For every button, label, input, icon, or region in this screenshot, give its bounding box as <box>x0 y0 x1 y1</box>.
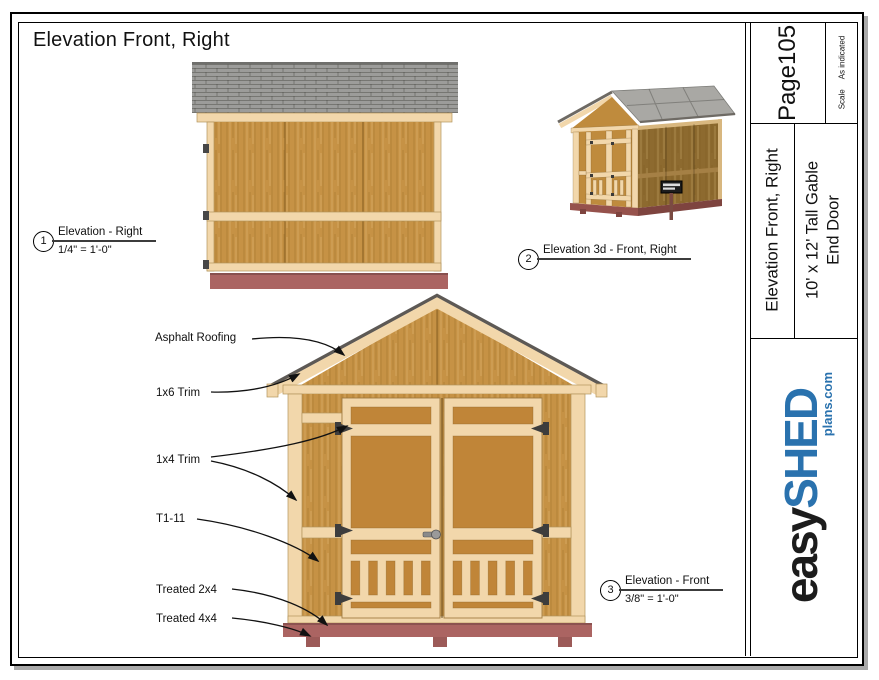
annotation-1x6-trim: 1x6 Trim <box>156 387 200 399</box>
annotation-1x4-trim: 1x4 Trim <box>156 454 200 466</box>
callout-number: 2 <box>518 249 539 270</box>
sheet-info-cell: Elevation Front, Right 10' x 12' Tall Ga… <box>751 123 857 339</box>
callout-front-elevation: 3 Elevation - Front 3/8" = 1'-0" <box>600 575 723 605</box>
annotation-treated-2x4: Treated 2x4 <box>156 584 217 596</box>
page-title: Elevation Front, Right <box>33 29 230 52</box>
callout-title: Elevation - Right <box>52 226 156 242</box>
annotation-asphalt-roofing: Asphalt Roofing <box>155 332 236 344</box>
callout-scale: 1/4" = 1'-0" <box>52 242 156 256</box>
callout-number: 3 <box>600 580 621 601</box>
title-block: Page105 ScaleAs indicated Elevation Fron… <box>750 22 857 656</box>
title-block-separator <box>745 22 746 656</box>
plan-sheet: Elevation Front, Right <box>0 0 879 680</box>
double-doors <box>342 398 542 618</box>
callout-3d-elevation: 2 Elevation 3d - Front, Right <box>518 244 691 270</box>
logo-cell: easySHED plans.com <box>751 338 857 656</box>
page-number: Page105 <box>774 24 802 120</box>
page-number-cell: Page105 <box>751 22 826 124</box>
scale-label: Scale <box>837 89 846 109</box>
front-elevation-drawing <box>265 292 610 652</box>
callout-title: Elevation - Front <box>619 575 723 591</box>
callout-scale: 3/8" = 1'-0" <box>619 591 723 605</box>
annotation-t1-11: T1-11 <box>156 513 185 525</box>
sheet-name: Elevation Front, Right <box>761 123 785 338</box>
scale-value: As indicated <box>837 36 846 80</box>
scale-cell: ScaleAs indicated <box>826 22 857 124</box>
callout-title: Elevation 3d - Front, Right <box>537 244 691 260</box>
annotation-treated-4x4: Treated 4x4 <box>156 613 217 625</box>
easyshedplans-logo: easySHED plans.com <box>766 346 846 646</box>
elevation-3d-drawing <box>550 75 740 230</box>
callout-scale <box>537 260 691 262</box>
logo-domain-text: plans.com <box>820 346 835 646</box>
info-divider <box>794 123 795 338</box>
plan-name: 10' x 12' Tall Gable End Door <box>801 123 847 338</box>
right-elevation-drawing <box>190 60 460 295</box>
callout-right-elevation: 1 Elevation - Right 1/4" = 1'-0" <box>33 226 156 256</box>
callout-number: 1 <box>33 231 54 252</box>
